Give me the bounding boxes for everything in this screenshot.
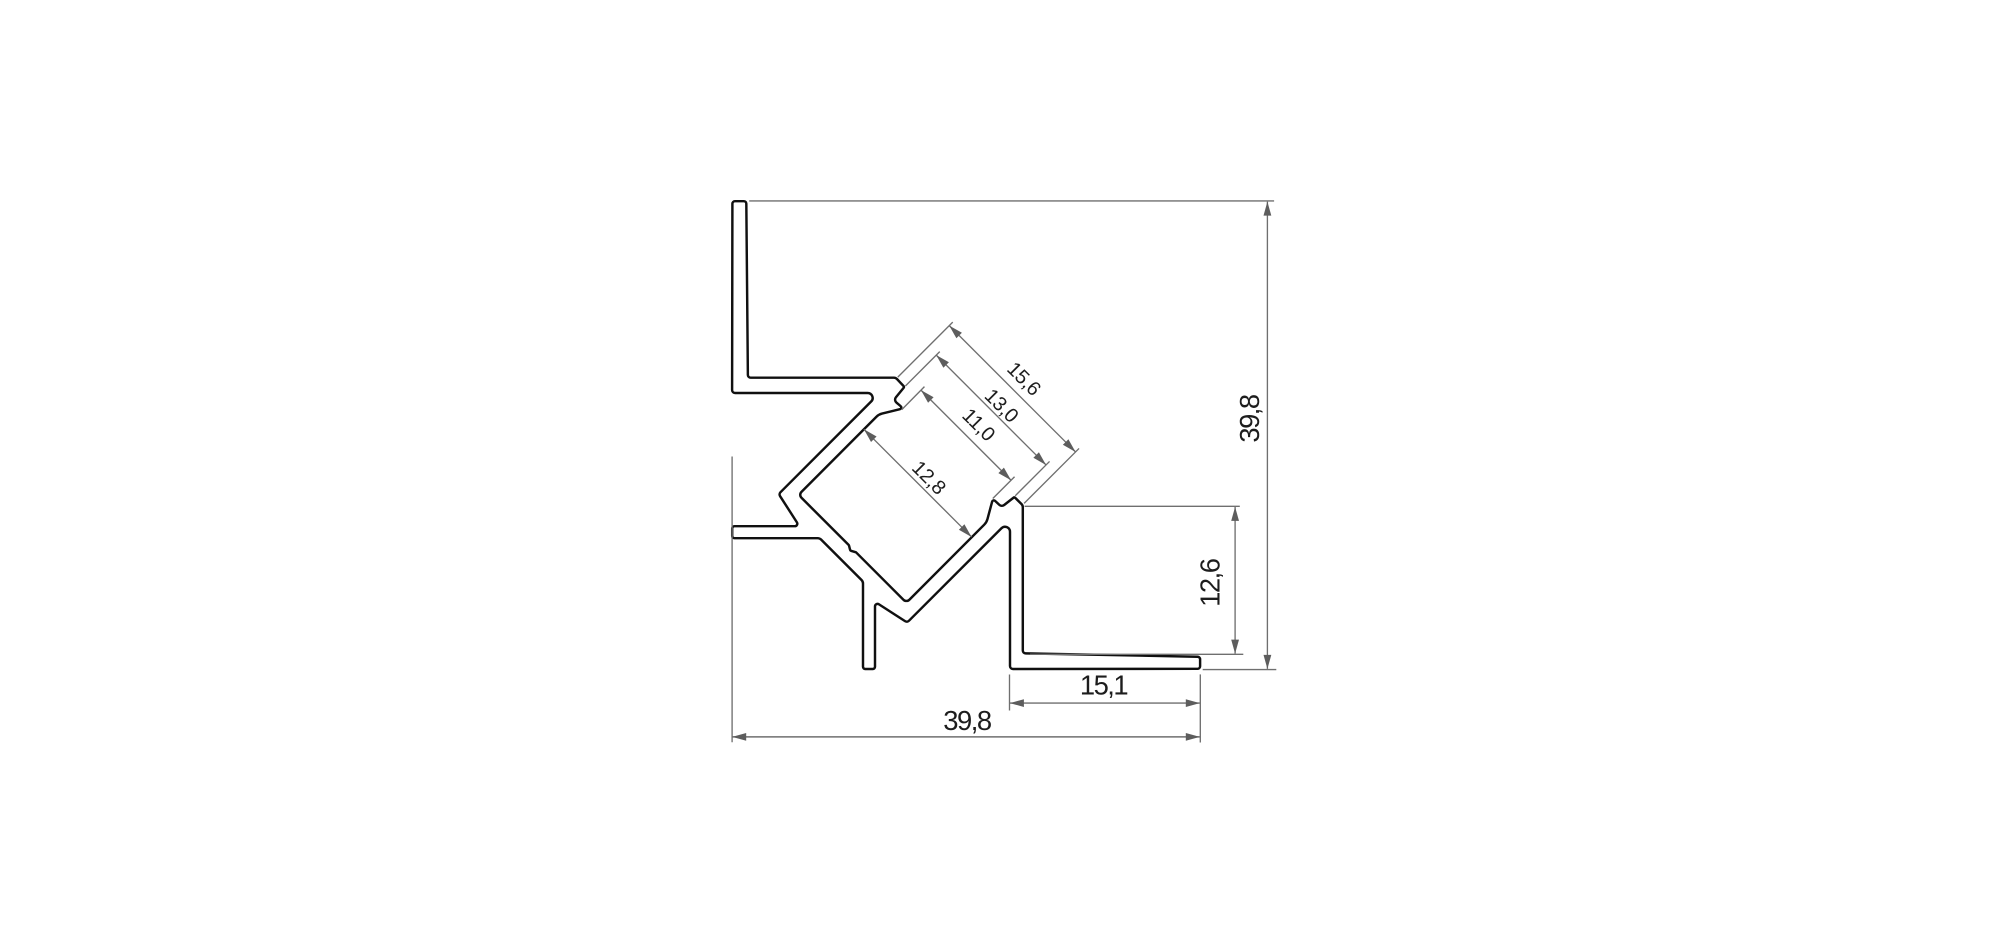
svg-text:15,1: 15,1 (1080, 670, 1128, 701)
svg-text:12,6: 12,6 (1194, 558, 1225, 607)
svg-text:39,8: 39,8 (943, 705, 992, 736)
svg-text:39,8: 39,8 (1234, 394, 1265, 443)
